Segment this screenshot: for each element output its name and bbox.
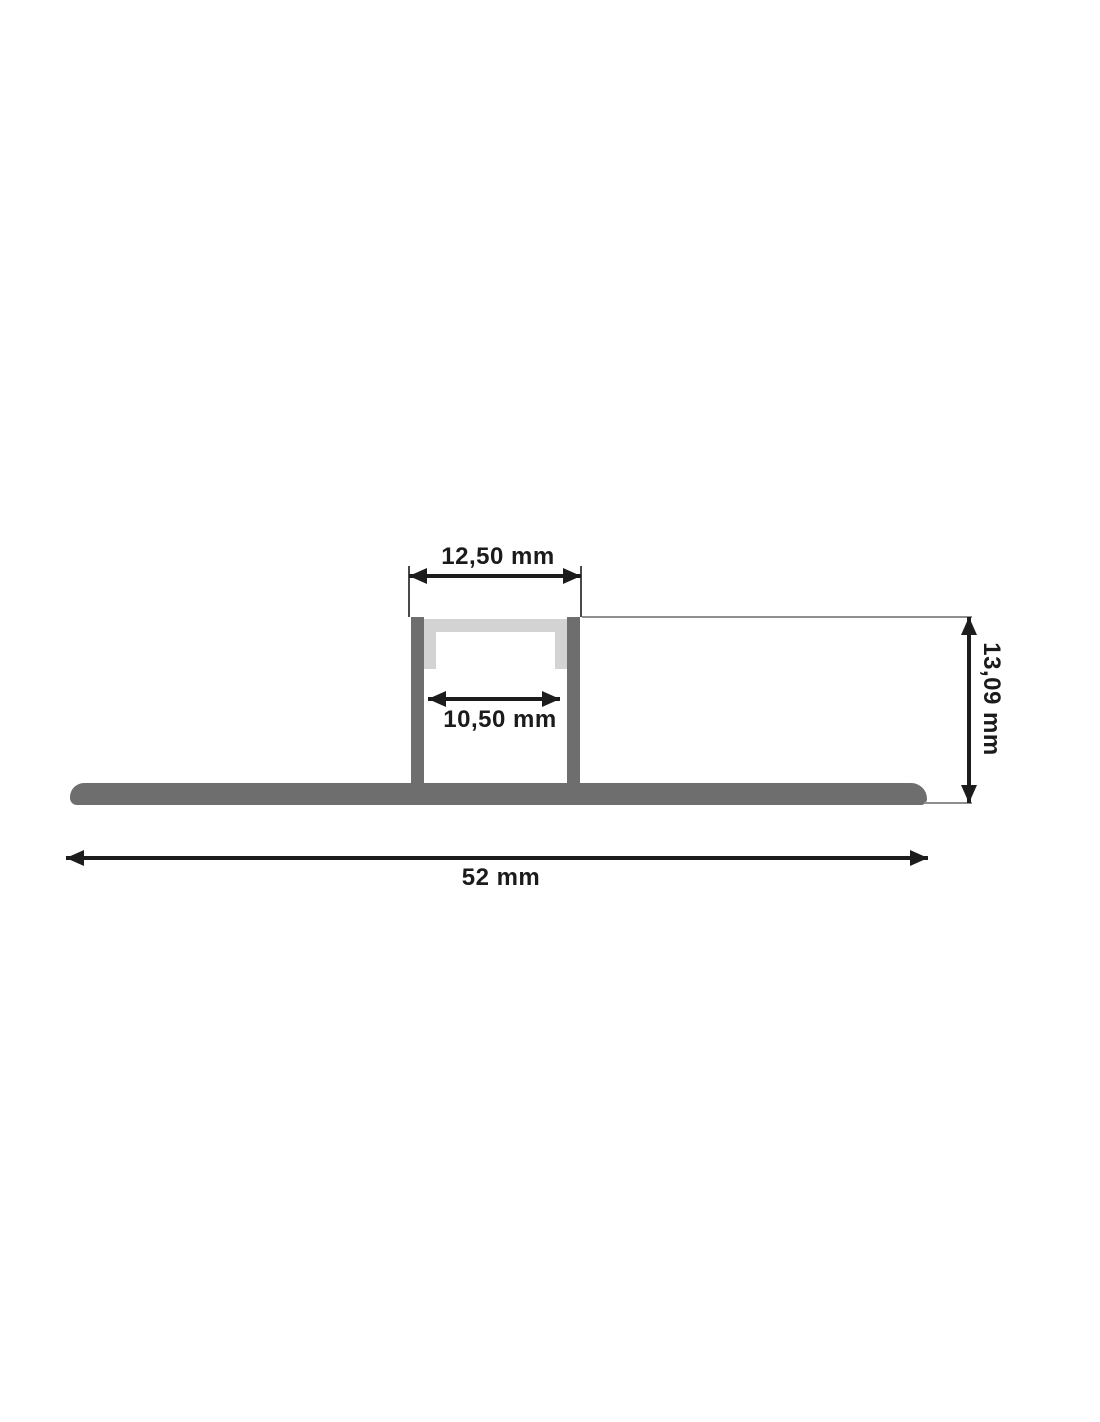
- diffuser-cover-top: [424, 619, 567, 632]
- inner-width-dimension-arrow: [428, 697, 560, 701]
- diffuser-cover-right-leg: [555, 632, 567, 669]
- diffuser-cover-left-leg: [424, 632, 436, 669]
- profile-base-flange: [70, 783, 927, 805]
- outer-width-dimension-label: 12,50 mm: [441, 543, 554, 571]
- total-width-dimension-label: 52 mm: [462, 864, 541, 892]
- profile-left-wall: [411, 617, 424, 784]
- profile-right-wall: [567, 617, 580, 784]
- total-width-dimension-arrow: [66, 856, 928, 860]
- height-dimension-arrow: [967, 617, 971, 803]
- outer-width-dimension-arrow: [409, 574, 581, 578]
- extension-line-top-horizontal: [582, 616, 972, 618]
- height-dimension-label: 13,09 mm: [977, 642, 1005, 755]
- technical-drawing-canvas: 12,50 mm 10,50 mm 13,09 mm 52 mm: [0, 0, 1100, 1422]
- inner-width-dimension-label: 10,50 mm: [443, 706, 556, 734]
